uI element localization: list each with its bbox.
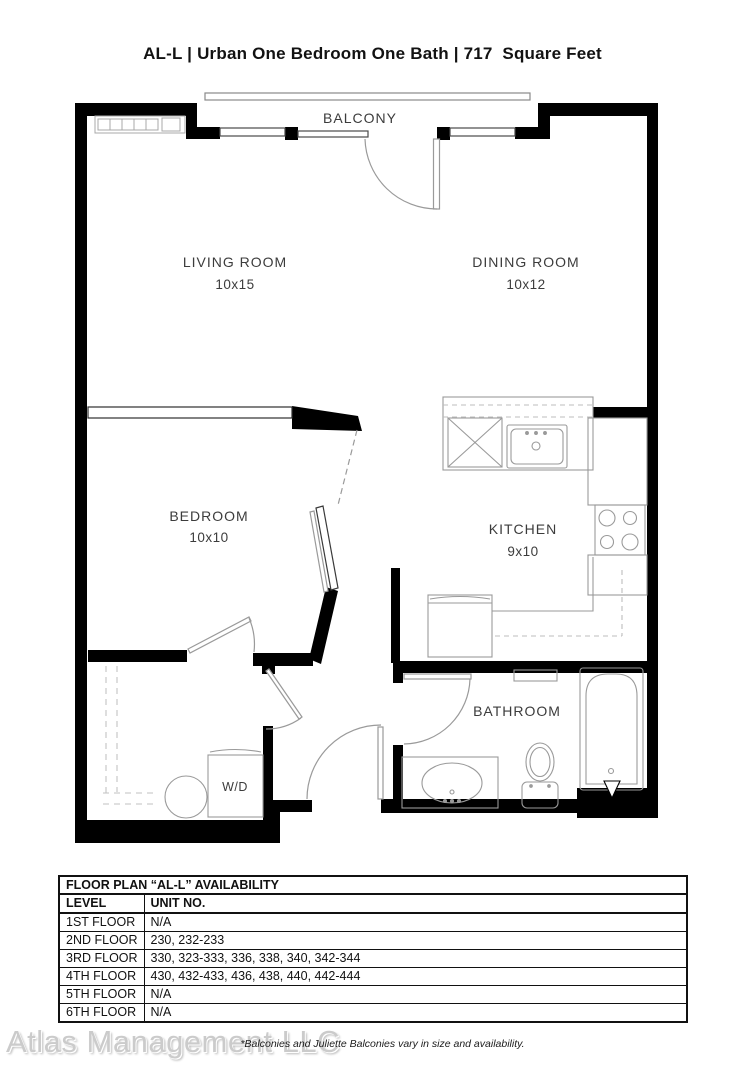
wall-kitchen-dining-stub [593, 407, 658, 418]
wall-top-mid-right [515, 127, 538, 139]
wall-bedroom-bottom-right [253, 653, 313, 666]
window-living [220, 128, 285, 136]
wall-tub-chunk [577, 788, 658, 818]
toilet [522, 743, 558, 808]
cell-units: 330, 323-333, 336, 338, 340, 342-344 [144, 950, 687, 968]
water-heater [165, 776, 207, 818]
partition-living-bedroom [88, 407, 292, 418]
wall-bathroom-stub [393, 661, 403, 683]
living-room-dims: 10x15 [215, 277, 254, 292]
cell-units: 230, 232-233 [144, 932, 687, 950]
bathtub [580, 668, 643, 798]
wall-top-left-step-v [186, 103, 197, 139]
balcony-door-swing [365, 139, 437, 209]
kitchen-counter-right [588, 418, 647, 505]
wall-bedroom-wedge [292, 406, 362, 431]
bathroom-door [404, 674, 471, 744]
wall-top-left-step-h [197, 127, 220, 139]
entry-door [307, 725, 383, 799]
wall-laundry-right [263, 726, 273, 806]
sliding-door-header [338, 430, 357, 505]
wall-bedroom-angled [309, 587, 338, 664]
kitchen-dims: 9x10 [507, 544, 538, 559]
wall-hall-kitchen [391, 568, 400, 663]
window-bench [95, 116, 185, 133]
doors [188, 139, 471, 799]
table-row: 5TH FLOOR N/A [59, 986, 687, 1004]
wall-bedroom-bottom-left [88, 650, 187, 662]
cell-level: 6TH FLOOR [59, 1004, 144, 1023]
wall-right [647, 103, 658, 803]
closet-shelving-dashed [103, 666, 158, 804]
cell-units: N/A [144, 913, 687, 932]
cell-level: 3RD FLOOR [59, 950, 144, 968]
stove [595, 505, 645, 555]
kitchen-sink [507, 425, 567, 468]
balcony-door-leaf [434, 139, 440, 209]
dining-room-dims: 10x12 [506, 277, 545, 292]
availability-table: FLOOR PLAN “AL-L” AVAILABILITY LEVEL UNI… [58, 875, 688, 1023]
balcony-label: BALCONY [323, 110, 397, 126]
wall-bottom-left [75, 820, 280, 843]
cell-level: 2ND FLOOR [59, 932, 144, 950]
wall-bathroom-top [393, 661, 658, 673]
column-header-level: LEVEL [59, 894, 144, 913]
wall-top-left [75, 103, 197, 116]
wall-bottom-connector [263, 805, 280, 843]
table-row: 3RD FLOOR 330, 323-333, 336, 338, 340, 3… [59, 950, 687, 968]
balcony-parapet [205, 93, 530, 100]
balcony-door-sidelite [298, 131, 368, 137]
cell-units: 430, 432-433, 436, 438, 440, 442-444 [144, 968, 687, 986]
laundry-door [266, 669, 302, 729]
table-row: 2ND FLOOR 230, 232-233 [59, 932, 687, 950]
wd-label: W/D [222, 780, 248, 794]
laundry-door-leaf [266, 669, 302, 719]
bathroom-label: BATHROOM [473, 703, 561, 719]
bathroom-fixtures [402, 668, 643, 808]
balcony-door [365, 139, 440, 209]
bedroom-door-leaf [188, 617, 251, 653]
bedroom-label: BEDROOM [169, 508, 248, 524]
cell-level: 4TH FLOOR [59, 968, 144, 986]
cell-level: 5TH FLOOR [59, 986, 144, 1004]
footnote: *Balconies and Juliette Balconies vary i… [20, 1038, 745, 1050]
bedroom-door [188, 617, 254, 653]
dining-room-label: DINING ROOM [472, 254, 579, 270]
availability-table-title: FLOOR PLAN “AL-L” AVAILABILITY [59, 876, 687, 894]
bathroom-door-swing [404, 679, 470, 744]
bedroom-dims: 10x10 [189, 530, 228, 545]
wall-top-right [538, 103, 658, 116]
entry-door-swing [307, 725, 381, 799]
room-labels: BALCONY LIVING ROOM 10x15 DINING ROOM 10… [169, 110, 579, 794]
living-room-label: LIVING ROOM [183, 254, 287, 270]
kitchen-label: KITCHEN [489, 521, 557, 537]
entry-door-leaf [378, 727, 383, 799]
kitchen-peninsula-edge [492, 557, 593, 611]
bedroom-sliding-door [310, 430, 357, 592]
balcony-jamb-right [437, 127, 450, 140]
window-dining [450, 128, 515, 136]
wall-left [75, 103, 87, 843]
table-row: 6TH FLOOR N/A [59, 1004, 687, 1023]
bench-end-box [162, 118, 180, 131]
bench-grid [98, 119, 158, 130]
cell-units: N/A [144, 986, 687, 1004]
cell-level: 1ST FLOOR [59, 913, 144, 932]
column-header-unit-no: UNIT NO. [144, 894, 687, 913]
bathroom-door-leaf [404, 674, 471, 679]
balcony-jamb-left [285, 127, 298, 140]
refrigerator [428, 595, 492, 657]
walls [75, 103, 658, 843]
table-row: 4TH FLOOR 430, 432-433, 436, 438, 440, 4… [59, 968, 687, 986]
bedroom-door-swing [249, 618, 254, 652]
cell-units: N/A [144, 1004, 687, 1023]
kitchen-counter-below-stove [588, 555, 647, 595]
windows [88, 93, 530, 418]
table-row: 1ST FLOOR N/A [59, 913, 687, 932]
laundry-closet [103, 666, 263, 818]
